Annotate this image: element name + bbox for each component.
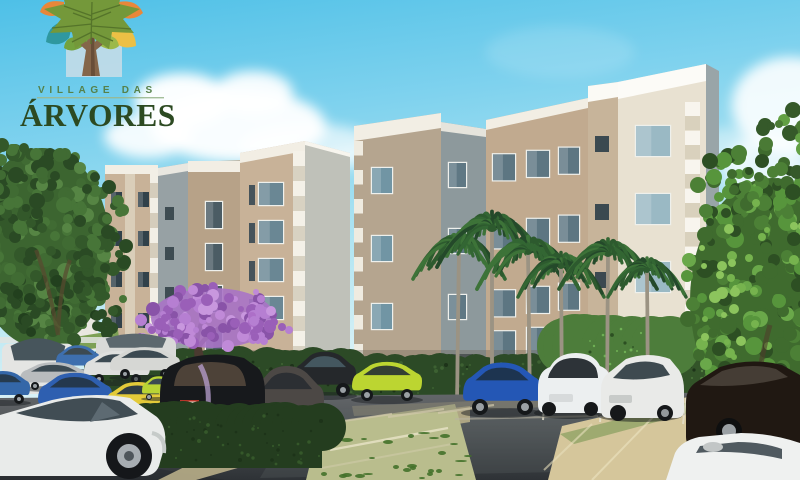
svg-text:VILLAGE DAS: VILLAGE DAS bbox=[38, 85, 157, 96]
svg-text:ÁRVORES: ÁRVORES bbox=[20, 98, 176, 133]
